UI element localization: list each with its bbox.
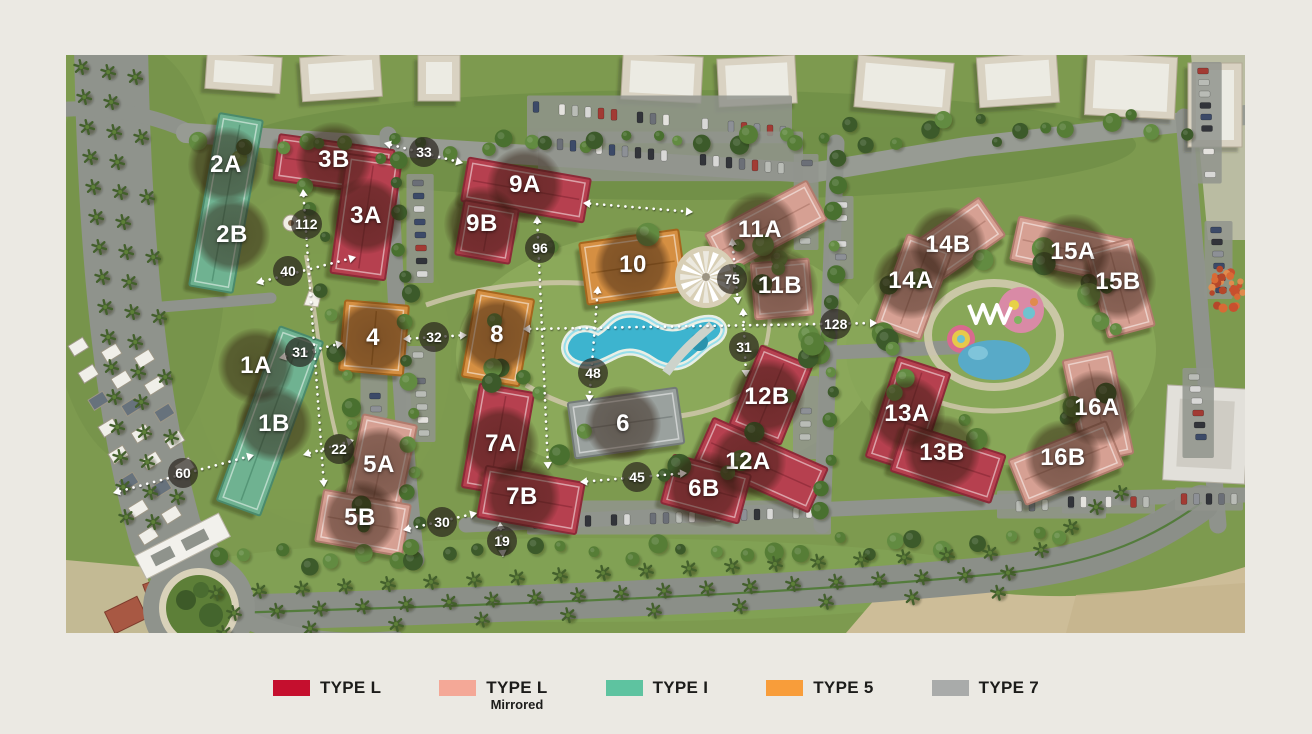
- legend-label: TYPE L: [486, 678, 547, 697]
- legend-label: TYPE 5: [813, 678, 873, 697]
- legend-item-type-l: TYPE L: [273, 678, 381, 697]
- legend-label: TYPE 7: [979, 678, 1039, 697]
- legend-color-swatch: [273, 680, 310, 696]
- master-plan-map: 2A2B3B3A9A9B1011A11B14B14A15A15B1A481B12…: [66, 55, 1245, 633]
- legend-item-type-7: TYPE 7: [932, 678, 1039, 697]
- legend: TYPE LTYPE LMirroredTYPE ITYPE 5TYPE 7: [0, 678, 1312, 712]
- legend-color-swatch: [766, 680, 803, 696]
- legend-label: TYPE I: [653, 678, 709, 697]
- plaza-canopy: [675, 246, 737, 308]
- legend-color-swatch: [932, 680, 969, 696]
- legend-item-type-5: TYPE 5: [766, 678, 873, 697]
- legend-label: TYPE L: [320, 678, 381, 697]
- aerial-base-illustration: [66, 55, 1245, 633]
- legend-color-swatch: [606, 680, 643, 696]
- legend-item-type-l-mirrored: TYPE LMirrored: [439, 678, 547, 712]
- legend-sublabel: Mirrored: [491, 697, 544, 712]
- legend-color-swatch: [439, 680, 476, 696]
- legend-item-type-i: TYPE I: [606, 678, 709, 697]
- page-background: 2A2B3B3A9A9B1011A11B14B14A15A15B1A481B12…: [0, 0, 1312, 734]
